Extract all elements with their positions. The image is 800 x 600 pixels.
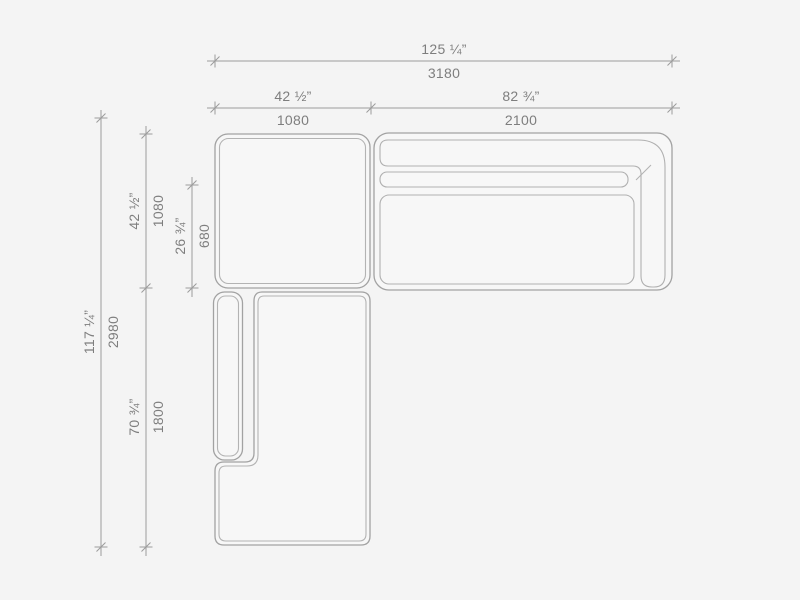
right-sofa-seat-cushion-outline <box>380 195 634 284</box>
dim-top-right-module-width-mm: 2100 <box>505 113 537 128</box>
dim-label-top-right-module-width: 82 ¾” 2100 <box>502 89 539 127</box>
dimension-lines <box>95 55 681 557</box>
left-chaise-module <box>214 292 371 545</box>
dim-label-total-depth: 117 ¼” 2980 <box>82 310 120 354</box>
dim-top-left-module-width-inches: 42 ½” <box>274 89 311 104</box>
dim-seat-depth-inches: 26 ¾” <box>173 217 188 254</box>
dim-top-right-module-width-inches: 82 ¾” <box>502 89 539 104</box>
dim-seat-depth-mm: 680 <box>197 224 212 248</box>
dim-label-top-module-depth: 42 ½” 1080 <box>127 192 165 229</box>
dim-top-left-module-width-mm: 1080 <box>277 113 309 128</box>
dim-top-module-depth-inches: 42 ½” <box>127 192 142 229</box>
dim-label-seat-depth: 26 ¾” 680 <box>173 217 211 254</box>
dim-label-top-left-module-width: 42 ½” 1080 <box>274 89 311 127</box>
dim-left-module-length-mm: 1800 <box>151 401 166 433</box>
dim-top-module-depth-mm: 1080 <box>151 195 166 227</box>
sofa-plan-drawing <box>0 0 800 600</box>
dim-total-depth-inches: 117 ¼” <box>82 310 97 354</box>
dim-label-left-module-length: 70 ¾” 1800 <box>127 398 165 435</box>
dim-total-depth-mm: 2980 <box>106 316 121 348</box>
diagram-canvas: 125 ¼” 3180 42 ½” 1080 82 ¾” 2100 117 ¼”… <box>0 0 800 600</box>
corner-module-shell-outline <box>215 134 370 288</box>
dim-label-total-width: 125 ¼” 3180 <box>421 42 466 80</box>
dim-total-width-mm: 3180 <box>428 66 460 81</box>
dim-left-module-length-inches: 70 ¾” <box>127 398 142 435</box>
right-sofa-module <box>374 133 672 290</box>
right-sofa-back-cushion-outline <box>380 172 628 187</box>
dim-total-width-inches: 125 ¼” <box>421 42 466 57</box>
corner-module <box>215 134 370 288</box>
